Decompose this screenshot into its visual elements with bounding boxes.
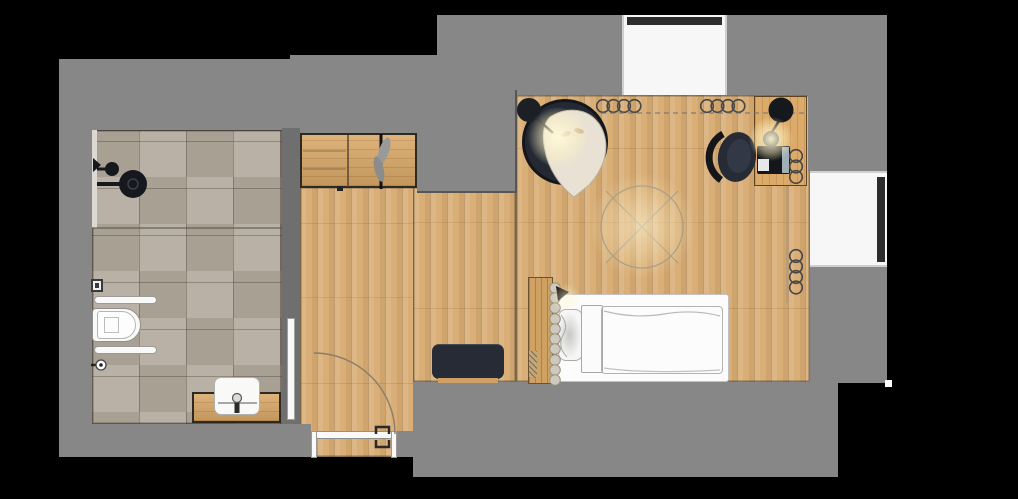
floor-plan bbox=[0, 0, 1018, 499]
duvet-fold-line bbox=[604, 311, 720, 316]
shower-fittings bbox=[93, 158, 147, 198]
plan-detail-layer bbox=[0, 0, 1018, 499]
entrance-door-swing bbox=[314, 353, 395, 447]
pillow-crease bbox=[561, 315, 567, 357]
radiator-coil-bed bbox=[790, 250, 803, 294]
bed-details bbox=[550, 283, 720, 386]
desk-lamp bbox=[763, 98, 794, 148]
wardrobe-interior bbox=[303, 134, 393, 191]
radiator-coil-top-left bbox=[597, 100, 641, 113]
office-chair bbox=[709, 130, 759, 185]
radiator-coil-desk bbox=[790, 150, 803, 184]
ceiling-light-symbol bbox=[601, 186, 683, 268]
floor-valve-icon bbox=[91, 360, 106, 370]
basin-faucet-icon bbox=[218, 394, 257, 414]
radiator-coil-top-right bbox=[701, 100, 745, 113]
duvet-fold-line bbox=[604, 368, 720, 372]
reading-light-icon bbox=[556, 286, 569, 301]
